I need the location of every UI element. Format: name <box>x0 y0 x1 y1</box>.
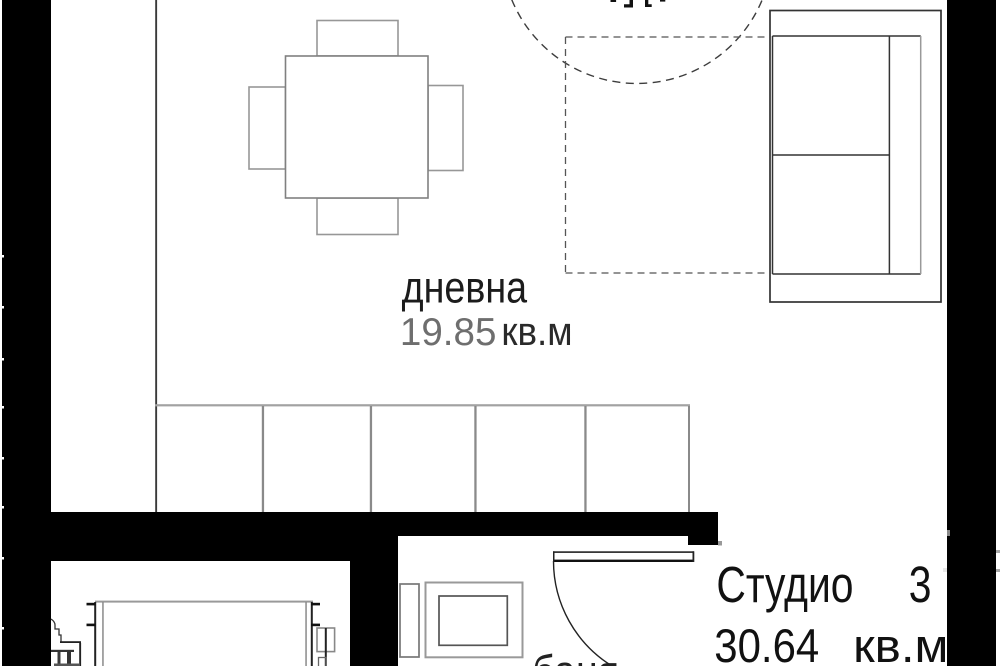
svg-text:Студио: Студио <box>716 556 853 614</box>
svg-text:кв.м: кв.м <box>853 620 948 666</box>
svg-text:кв.м: кв.м <box>501 310 572 355</box>
svg-text:баня: баня <box>532 647 619 666</box>
svg-text:3: 3 <box>909 556 932 614</box>
svg-text:30.64: 30.64 <box>714 620 819 666</box>
svg-text:дневна: дневна <box>402 263 528 313</box>
svg-text:19.85: 19.85 <box>400 311 497 354</box>
